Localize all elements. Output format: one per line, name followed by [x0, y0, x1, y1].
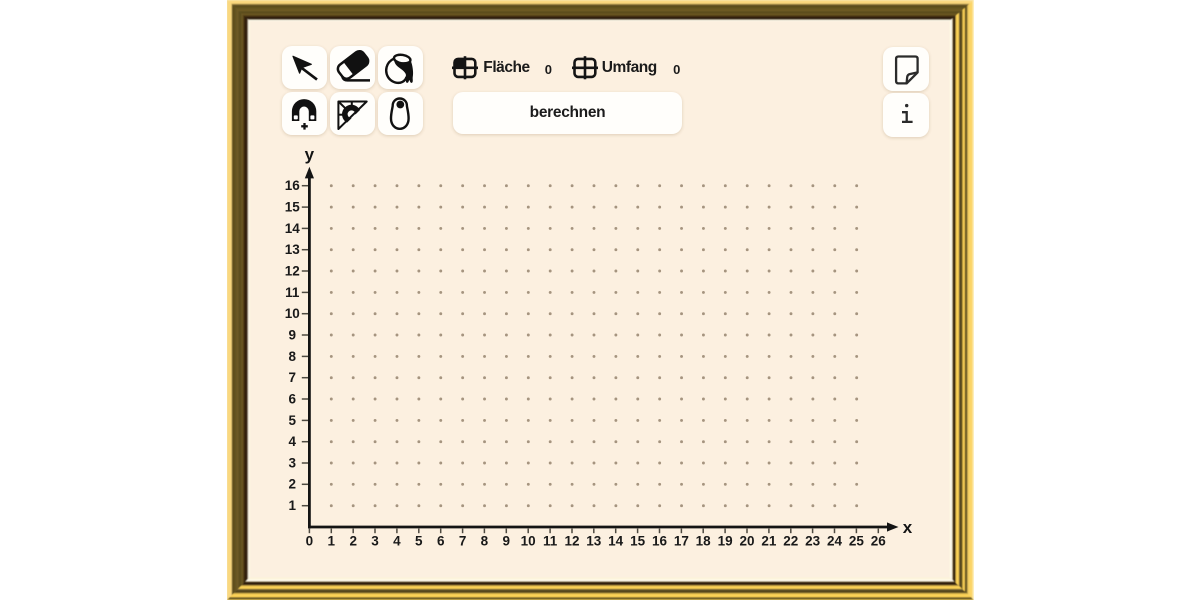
svg-text:13: 13: [285, 242, 301, 257]
svg-text:3: 3: [289, 455, 297, 470]
svg-text:25: 25: [849, 533, 865, 548]
svg-text:9: 9: [503, 533, 511, 548]
svg-text:2: 2: [289, 477, 297, 492]
svg-text:10: 10: [285, 306, 300, 321]
svg-text:17: 17: [674, 533, 689, 548]
svg-text:21: 21: [761, 533, 777, 548]
svg-text:8: 8: [481, 533, 489, 548]
svg-text:2: 2: [349, 533, 357, 548]
svg-text:16: 16: [285, 178, 301, 193]
svg-text:5: 5: [289, 413, 297, 428]
svg-text:24: 24: [827, 533, 843, 548]
svg-text:16: 16: [652, 533, 668, 548]
svg-text:13: 13: [586, 533, 602, 548]
svg-text:14: 14: [285, 221, 301, 236]
svg-text:19: 19: [718, 533, 733, 548]
svg-text:0: 0: [306, 533, 314, 548]
svg-text:4: 4: [289, 434, 297, 449]
svg-text:15: 15: [630, 533, 646, 548]
svg-text:4: 4: [393, 533, 401, 548]
svg-text:10: 10: [521, 533, 536, 548]
svg-text:11: 11: [543, 533, 558, 548]
svg-text:1: 1: [328, 533, 336, 548]
svg-text:x: x: [903, 518, 913, 537]
svg-text:5: 5: [415, 533, 423, 548]
svg-text:y: y: [305, 145, 315, 164]
svg-text:11: 11: [285, 285, 300, 300]
svg-text:6: 6: [437, 533, 445, 548]
svg-text:7: 7: [289, 370, 297, 385]
svg-text:20: 20: [739, 533, 754, 548]
svg-text:6: 6: [289, 391, 297, 406]
svg-text:15: 15: [285, 200, 301, 215]
svg-text:1: 1: [289, 498, 297, 513]
svg-text:8: 8: [289, 349, 297, 364]
svg-text:14: 14: [608, 533, 624, 548]
svg-text:3: 3: [371, 533, 379, 548]
svg-text:9: 9: [289, 327, 297, 342]
svg-text:26: 26: [871, 533, 887, 548]
svg-text:12: 12: [564, 533, 579, 548]
svg-text:12: 12: [285, 263, 300, 278]
svg-text:22: 22: [783, 533, 798, 548]
svg-text:18: 18: [696, 533, 712, 548]
svg-text:23: 23: [805, 533, 821, 548]
svg-text:7: 7: [459, 533, 467, 548]
